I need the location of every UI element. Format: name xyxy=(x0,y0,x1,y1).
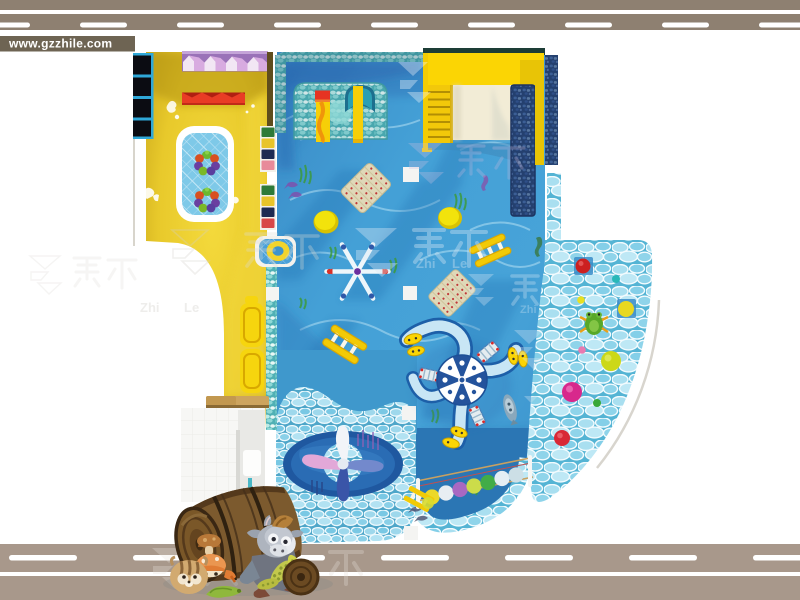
svg-text:Zhi: Zhi xyxy=(416,256,436,271)
svg-text:www.gzzhile.com: www.gzzhile.com xyxy=(8,37,112,51)
svg-text:Zhi: Zhi xyxy=(520,304,537,316)
svg-text:Le: Le xyxy=(184,300,199,315)
svg-text:Zhi: Zhi xyxy=(140,300,160,315)
svg-text:Le: Le xyxy=(452,256,467,271)
